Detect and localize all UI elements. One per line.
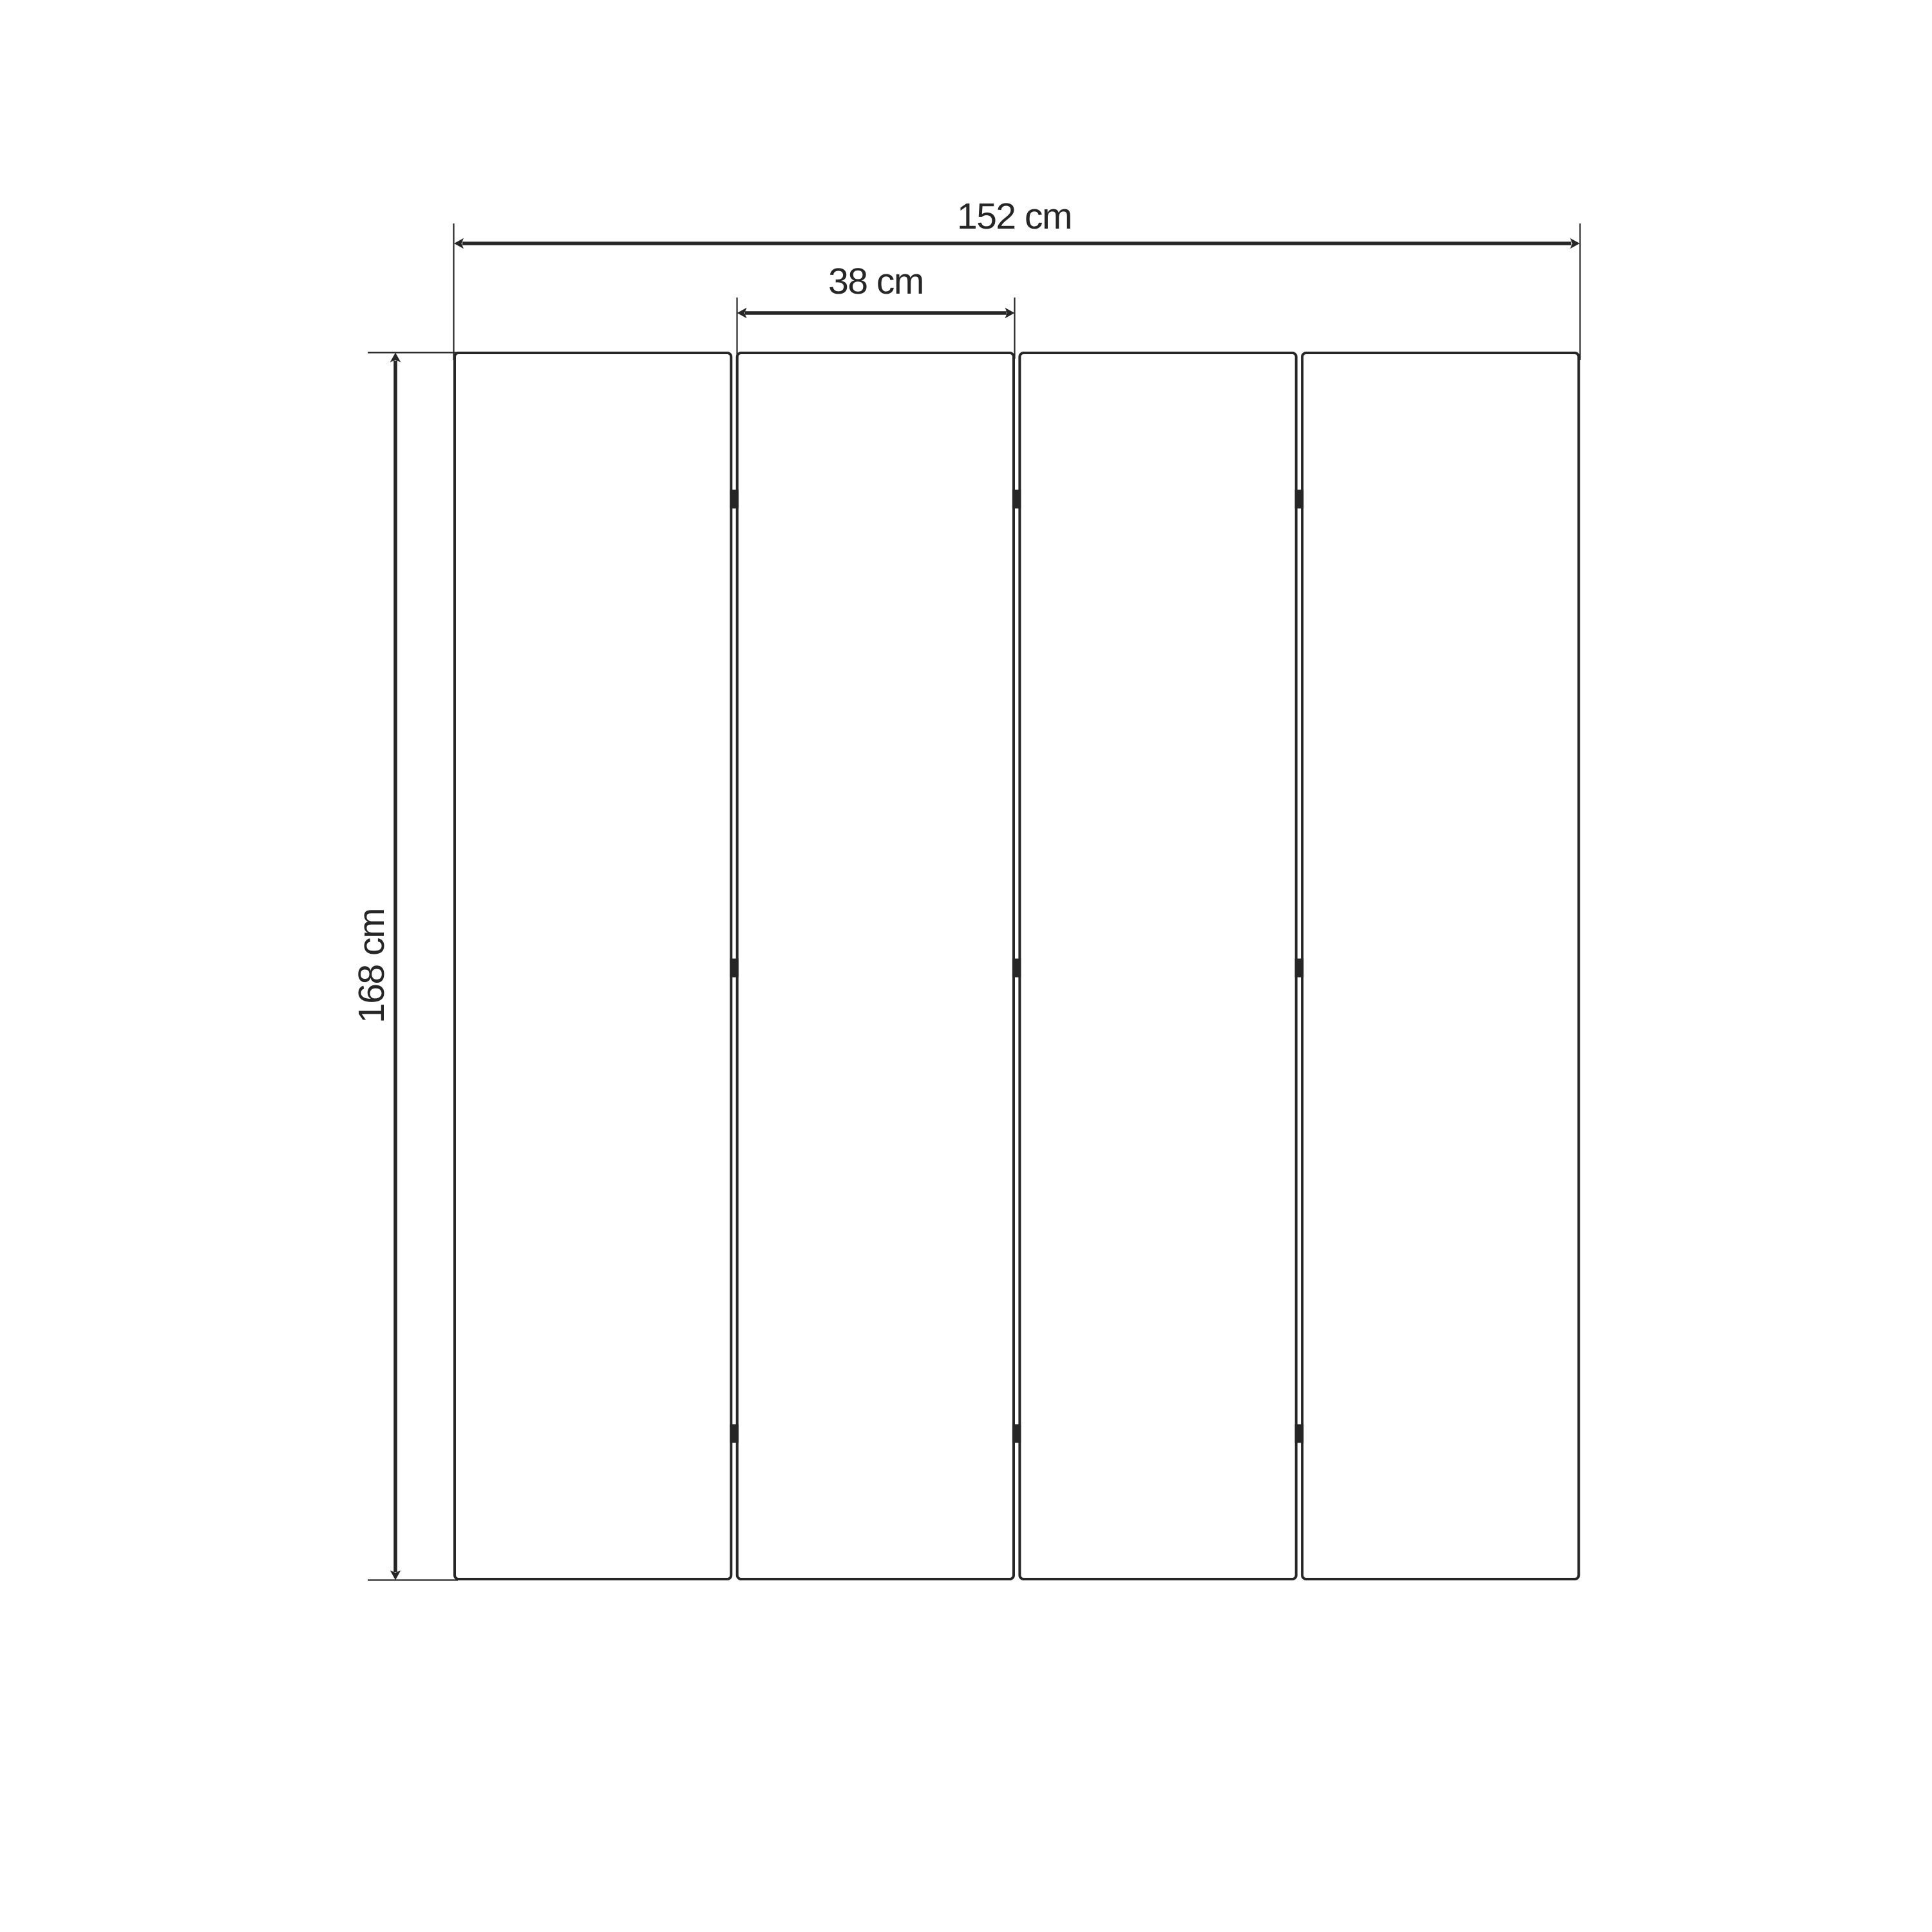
svg-text:168 cm: 168 cm — [351, 909, 392, 1023]
svg-text:152 cm: 152 cm — [957, 196, 1072, 237]
svg-text:38 cm: 38 cm — [828, 261, 923, 302]
